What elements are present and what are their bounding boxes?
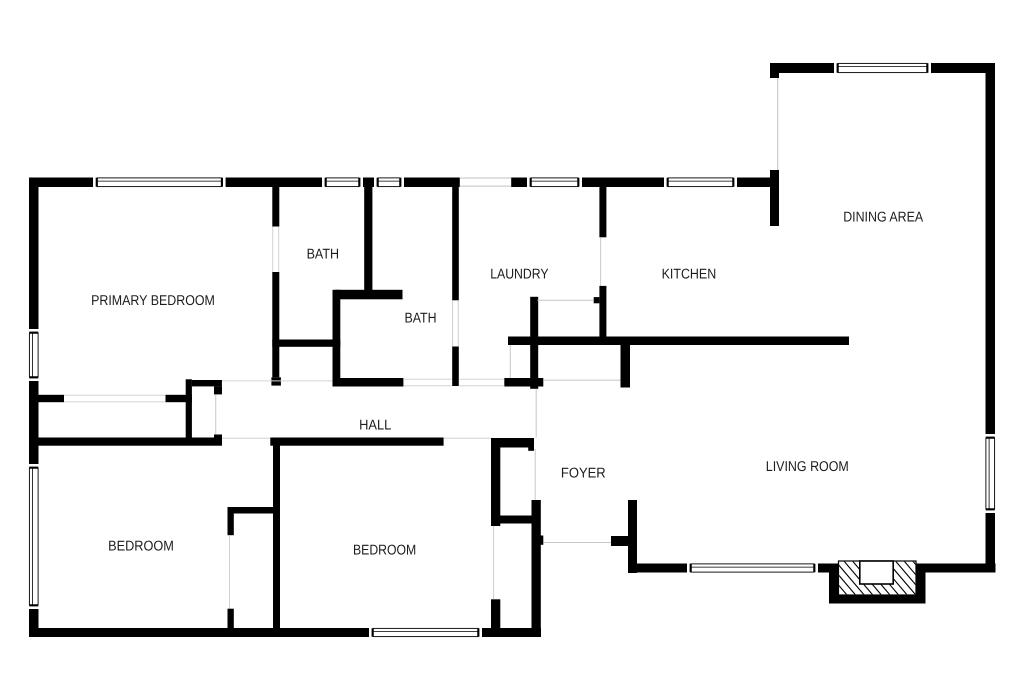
svg-text:PRIMARY BEDROOM: PRIMARY BEDROOM — [91, 293, 215, 309]
svg-text:LIVING ROOM: LIVING ROOM — [766, 459, 849, 475]
svg-text:BATH: BATH — [307, 246, 339, 262]
svg-text:KITCHEN: KITCHEN — [662, 266, 717, 282]
svg-text:FOYER: FOYER — [561, 466, 606, 482]
svg-text:LAUNDRY: LAUNDRY — [490, 267, 549, 283]
svg-text:BEDROOM: BEDROOM — [108, 539, 174, 555]
svg-text:HALL: HALL — [359, 418, 391, 434]
svg-text:BEDROOM: BEDROOM — [353, 543, 416, 559]
svg-text:BATH: BATH — [405, 311, 437, 327]
svg-text:DINING AREA: DINING AREA — [843, 210, 923, 226]
